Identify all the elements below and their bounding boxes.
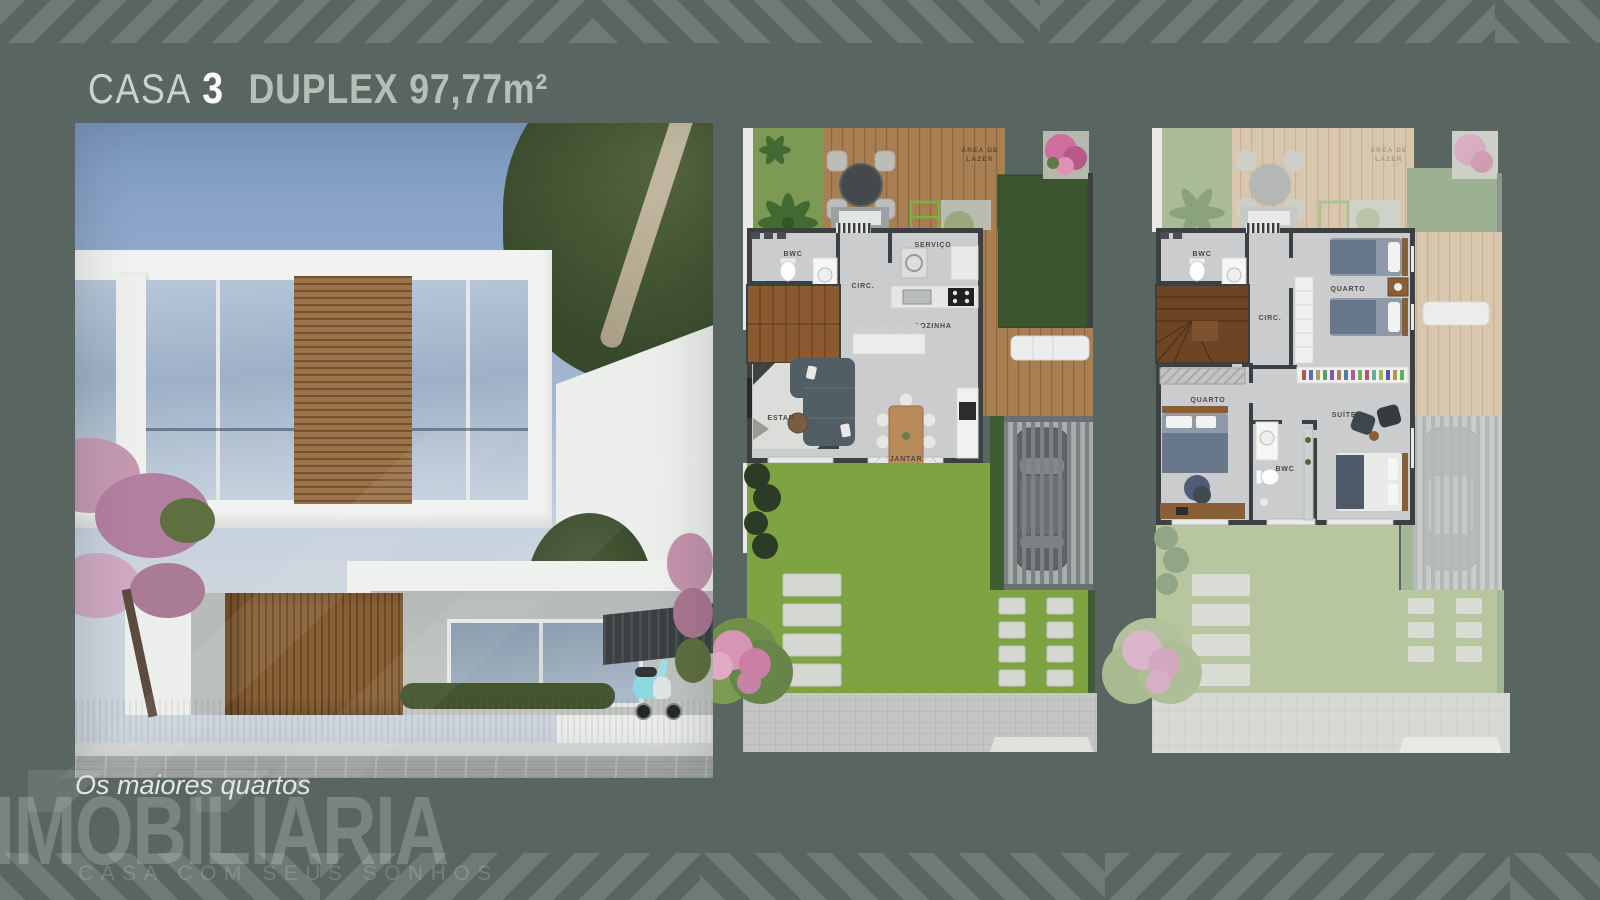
caption: Os maiores quartos xyxy=(75,770,311,801)
tv xyxy=(747,378,752,418)
top-stripe-band xyxy=(0,0,1600,43)
kitchen-counter xyxy=(891,286,978,308)
room-label-area-lazer-1: ÁREA DE xyxy=(961,145,998,154)
room-label-bwc: BWC xyxy=(783,251,802,258)
room-label-bwc: BWC xyxy=(1192,251,1211,258)
patio-door xyxy=(768,457,833,463)
driveway xyxy=(990,737,1093,752)
room-label-area-lazer-2: LAZER xyxy=(1375,156,1403,163)
stripe-segment xyxy=(1510,853,1600,900)
room-label-area-lazer-1: ÁREA DE xyxy=(1370,145,1407,154)
room-label-servico: SERVIÇO xyxy=(915,242,952,249)
watermark-tagline: CASA COM SEUS SONHOS xyxy=(78,862,499,886)
pergola-beam xyxy=(1004,584,1093,590)
room-label-jantar: JANTAR xyxy=(890,456,923,463)
pergola-slats xyxy=(1004,416,1093,590)
stripe-segment xyxy=(1105,853,1510,900)
sun-lounger xyxy=(1011,336,1089,360)
window xyxy=(1411,304,1414,330)
pergola-beam xyxy=(1004,416,1093,422)
stripe-segment xyxy=(700,853,1105,900)
window xyxy=(1172,519,1228,525)
floorplan-ground: ÁREA DE LAZER BWC xyxy=(743,128,1097,752)
stairs xyxy=(747,285,840,363)
room-label-quarto: QUARTO xyxy=(1190,397,1225,404)
page: CASA 3 DUPLEX 97,77m² xyxy=(0,0,1600,900)
stairs xyxy=(1156,285,1249,363)
twin-bed xyxy=(1330,298,1408,336)
title-spec: DUPLEX 97,77m² xyxy=(249,65,549,113)
room-label-circ: CIRC. xyxy=(851,283,874,290)
hedge-strip xyxy=(990,416,1004,590)
window xyxy=(1327,519,1393,525)
room-label-circ: CIRC. xyxy=(1258,315,1281,322)
house-photo xyxy=(75,123,713,778)
linen-shelf xyxy=(1295,277,1313,363)
page-title: CASA 3 DUPLEX 97,77m² xyxy=(88,64,548,114)
window xyxy=(1411,428,1414,468)
flower-bed xyxy=(1043,131,1089,179)
hedge-garden xyxy=(998,175,1088,328)
room-label-quarto-twin: QUARTO xyxy=(1330,286,1365,293)
photo-vignette xyxy=(75,123,713,778)
nightstand xyxy=(1388,278,1408,296)
stripe-segment xyxy=(0,0,593,43)
room-label-area-lazer-2: LAZER xyxy=(966,156,994,163)
boundary-wall xyxy=(1088,173,1093,330)
stripe-segment xyxy=(593,0,1040,43)
suite-bed xyxy=(1336,453,1408,511)
title-prefix: CASA xyxy=(88,65,192,113)
fridge xyxy=(957,388,978,458)
entry-mat xyxy=(836,223,871,233)
hedge-strip xyxy=(1088,590,1095,693)
stripe-segment xyxy=(1040,0,1495,43)
title-house-number: 3 xyxy=(202,64,223,114)
wardrobe-rack xyxy=(1297,367,1408,383)
entry-mat xyxy=(1246,223,1280,233)
room-label-bwc2: BWC xyxy=(1275,466,1294,473)
double-bed xyxy=(1162,406,1228,473)
floorplan-upper: ÁREA DE LAZER BW xyxy=(1152,128,1510,753)
window xyxy=(1411,246,1414,272)
room-label-suite: SUÍTE xyxy=(1332,410,1357,419)
twin-bed xyxy=(1330,238,1408,276)
stripe-segment xyxy=(1495,0,1600,43)
closet xyxy=(1160,368,1245,384)
room-label-estar: ESTAR xyxy=(767,415,794,422)
